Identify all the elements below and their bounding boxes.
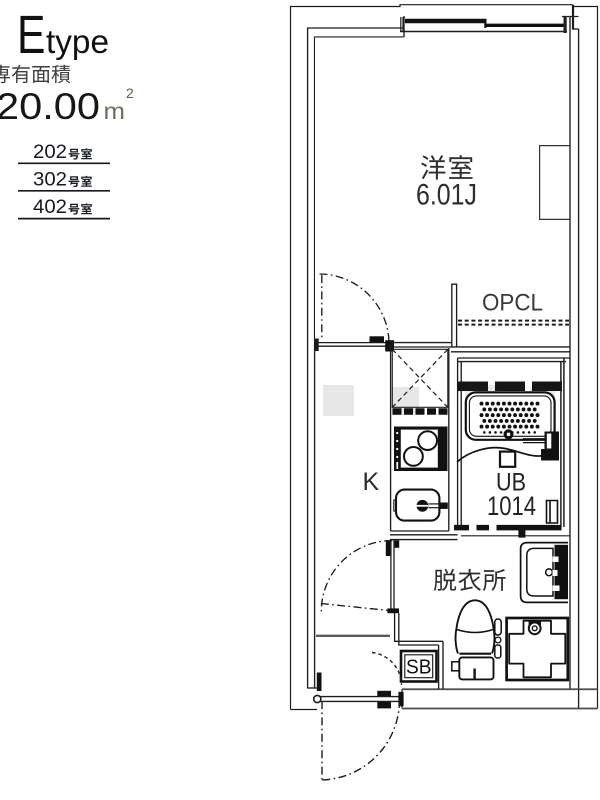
svg-text:302: 302 [33,170,67,191]
svg-text:OPCL: OPCL [482,290,543,317]
svg-text:E: E [17,5,45,65]
svg-text:202: 202 [33,142,67,163]
svg-text:K: K [363,468,380,496]
svg-text:2: 2 [126,85,134,101]
svg-text:SB: SB [406,657,432,679]
svg-text:402: 402 [33,197,67,218]
svg-text:6.01J: 6.01J [416,179,477,212]
svg-text:type: type [46,23,109,60]
svg-text:m: m [104,98,126,124]
svg-text:1014: 1014 [487,491,536,521]
svg-text:20.00: 20.00 [0,85,100,127]
